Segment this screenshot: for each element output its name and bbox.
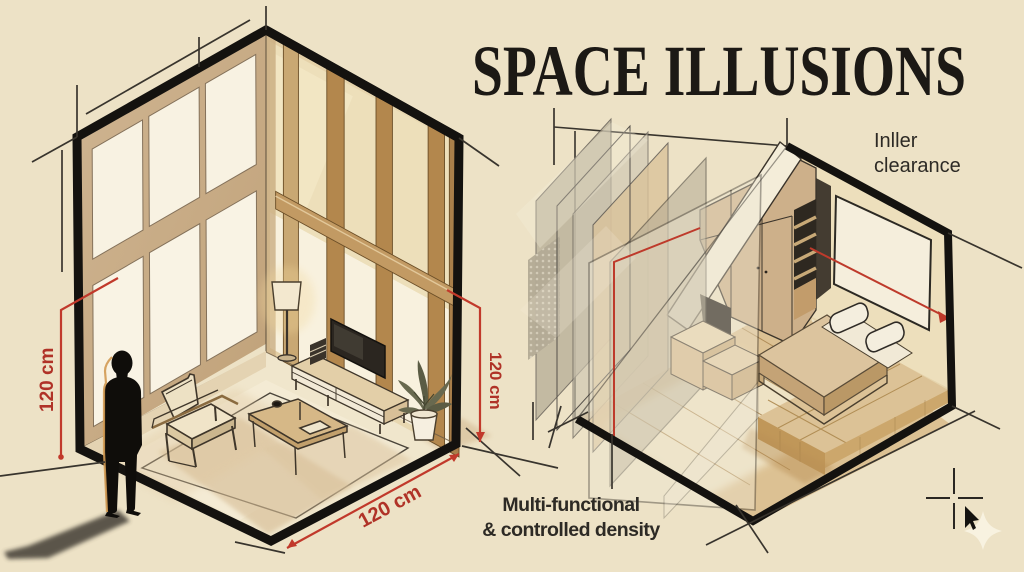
svg-text:120 cm: 120 cm: [37, 348, 58, 412]
svg-text:& controlled density: & controlled density: [482, 519, 660, 541]
svg-text:Inller: Inller: [874, 130, 918, 152]
svg-text:clearance: clearance: [874, 155, 961, 177]
svg-text:SPACE ILLUSIONS: SPACE ILLUSIONS: [472, 31, 966, 111]
svg-text:120 cm: 120 cm: [486, 352, 505, 410]
svg-text:Multi-functional: Multi-functional: [502, 494, 639, 516]
